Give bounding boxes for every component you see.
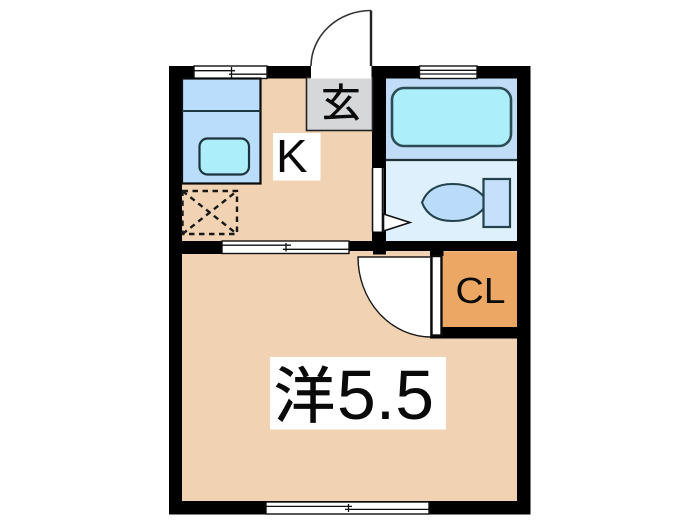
- svg-text:K: K: [276, 130, 308, 182]
- svg-text:CL: CL: [456, 270, 506, 311]
- svg-text:5.5: 5.5: [337, 356, 434, 434]
